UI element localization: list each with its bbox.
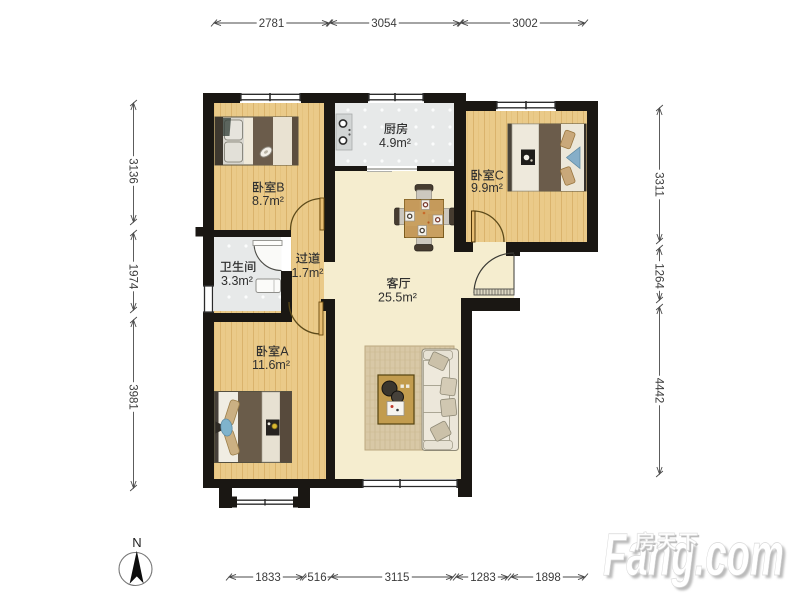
svg-text:8.7m²: 8.7m² [252, 194, 284, 208]
svg-text:1283: 1283 [470, 572, 496, 584]
svg-text:N: N [132, 535, 141, 550]
svg-text:9.9m²: 9.9m² [471, 181, 503, 195]
svg-text:1.7m²: 1.7m² [292, 266, 324, 280]
svg-text:3002: 3002 [512, 18, 538, 30]
svg-text:B: B [276, 180, 284, 194]
svg-text:2781: 2781 [259, 18, 285, 30]
svg-text:1898: 1898 [535, 572, 561, 584]
svg-text:1833: 1833 [255, 572, 281, 584]
svg-text:11.6m²: 11.6m² [252, 358, 290, 372]
svg-text:25.5m²: 25.5m² [378, 291, 417, 305]
svg-text:3981: 3981 [127, 384, 139, 410]
svg-text:4442: 4442 [653, 378, 665, 404]
svg-text:3136: 3136 [127, 158, 139, 184]
svg-text:4.9m²: 4.9m² [379, 136, 411, 150]
svg-text:1264: 1264 [653, 263, 665, 289]
svg-text:3.3m²: 3.3m² [221, 274, 253, 288]
svg-text:3311: 3311 [653, 172, 665, 197]
svg-text:Fang.com: Fang.com [603, 521, 784, 588]
svg-text:A: A [280, 344, 289, 358]
svg-text:3115: 3115 [385, 572, 410, 584]
svg-text:516: 516 [307, 572, 326, 584]
svg-text:1974: 1974 [127, 264, 139, 290]
svg-text:3054: 3054 [371, 18, 397, 30]
